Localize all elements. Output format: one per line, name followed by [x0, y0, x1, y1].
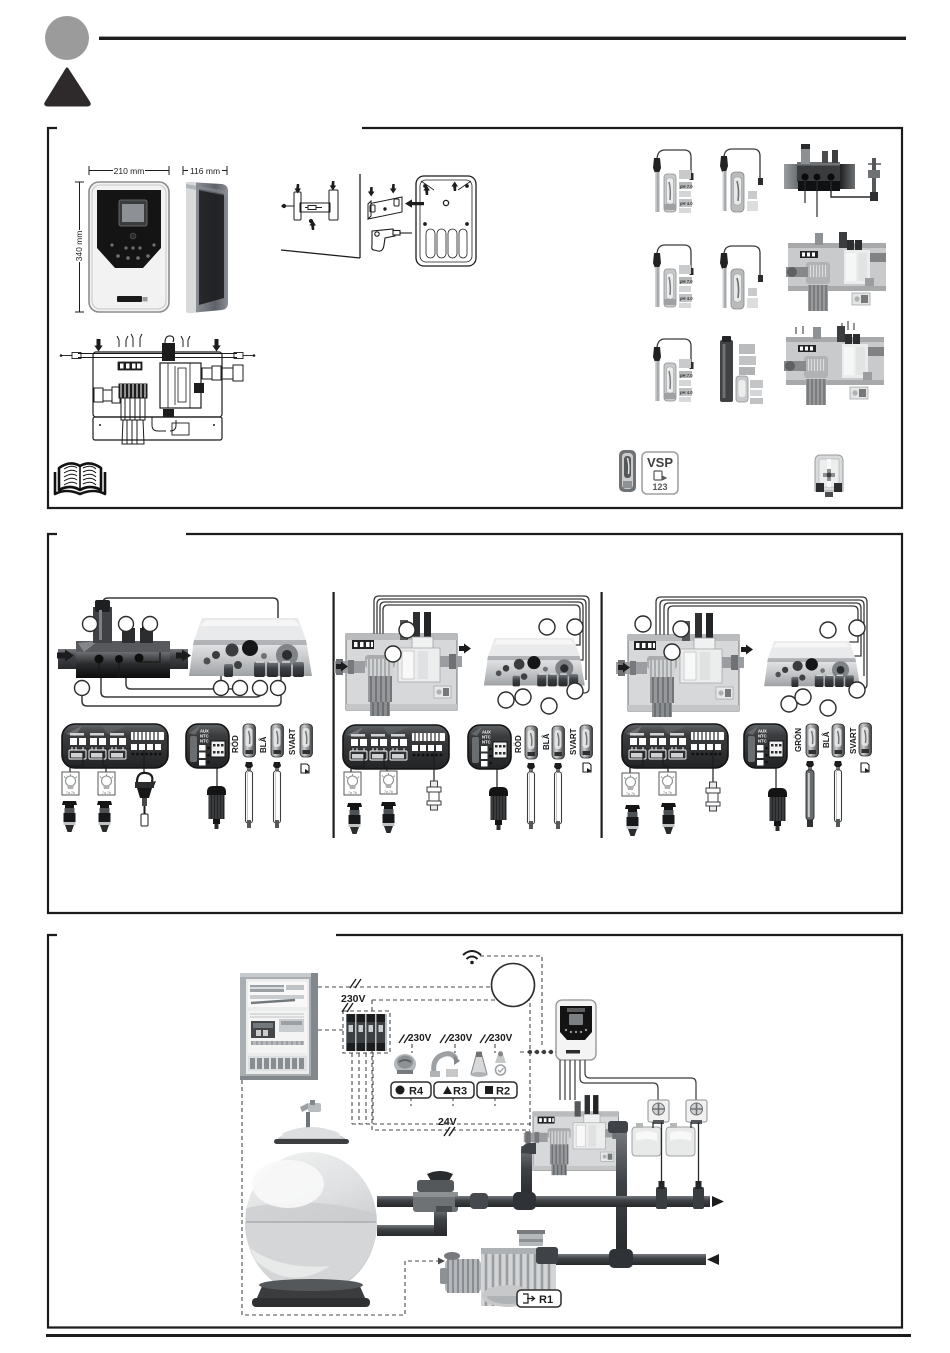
svg-text:210 mm: 210 mm — [114, 166, 145, 176]
svg-text:SVART: SVART — [849, 727, 858, 754]
svg-text:SVART: SVART — [288, 728, 297, 755]
svg-text:340 mm: 340 mm — [74, 231, 84, 262]
svg-text:BLÅ: BLÅ — [259, 736, 268, 753]
svg-text:24V: 24V — [438, 1116, 457, 1128]
svg-text:R4: R4 — [409, 1086, 424, 1098]
svg-text:R1: R1 — [539, 1294, 553, 1306]
svg-text:116 mm: 116 mm — [190, 166, 220, 176]
svg-text:230V: 230V — [489, 1033, 513, 1044]
svg-text:123: 123 — [652, 482, 667, 492]
svg-text:230V: 230V — [449, 1033, 473, 1044]
svg-text:R2: R2 — [496, 1086, 510, 1098]
svg-text:VSP: VSP — [647, 455, 673, 470]
svg-text:BLÅ: BLÅ — [542, 733, 551, 750]
svg-text:pH 7.0: pH 7.0 — [680, 184, 693, 189]
svg-text:pH 4.0: pH 4.0 — [680, 201, 693, 206]
svg-text:SVART: SVART — [569, 728, 578, 755]
svg-text:BLÅ: BLÅ — [822, 731, 831, 748]
svg-text:RÖD: RÖD — [514, 735, 523, 753]
svg-text:GRÖN: GRÖN — [794, 728, 803, 752]
svg-text:R3: R3 — [453, 1086, 467, 1098]
svg-text:230V: 230V — [408, 1033, 432, 1044]
svg-text:RÖD: RÖD — [231, 735, 240, 753]
